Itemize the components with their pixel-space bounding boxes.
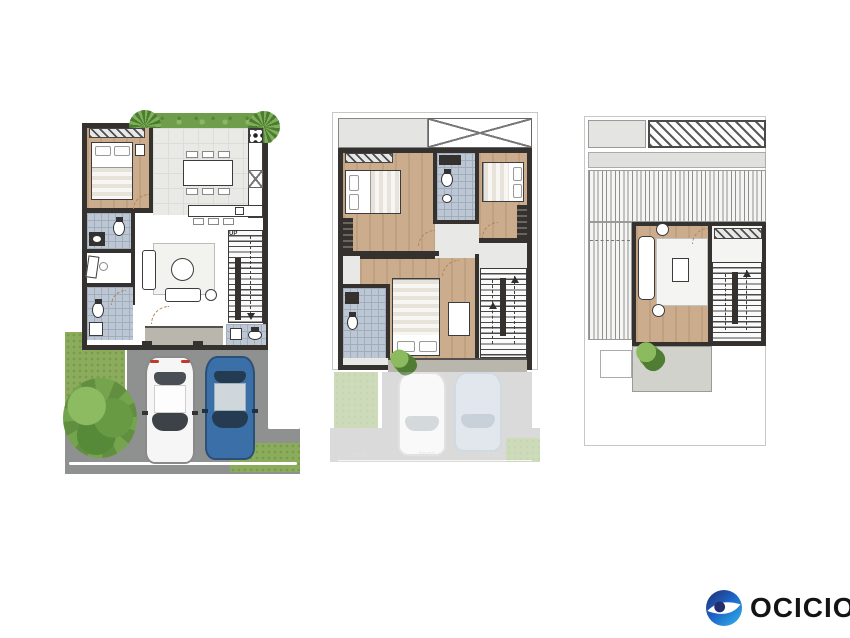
skylight-hatch: [648, 120, 766, 148]
brand-name: OCICIO: [750, 592, 850, 624]
bed-icon: [392, 278, 440, 356]
stair-spine: [732, 272, 738, 324]
floorplan-sheet: UP: [0, 0, 850, 638]
coffee-table-icon: [171, 258, 194, 281]
pillow: [349, 194, 359, 210]
dimension-label: 1875: [348, 452, 366, 459]
wardrobe: [343, 218, 353, 253]
bed-icon: [91, 142, 133, 200]
brand-logo: OCICIO: [706, 590, 850, 626]
terrace-step-outline: [600, 350, 632, 378]
side-table-icon: [205, 289, 217, 301]
wall-segment: [433, 220, 479, 224]
stair-path: [492, 280, 493, 344]
windshield: [152, 413, 188, 431]
grass-ghost: [506, 438, 540, 462]
bed-icon: [345, 170, 401, 214]
vanity: [345, 292, 359, 304]
blanket: [393, 279, 439, 335]
pergola-slats: [588, 170, 766, 222]
wall-segment: [479, 238, 527, 243]
second-floor-plan: 1875 3000 2275: [330, 110, 540, 482]
windshield: [461, 414, 495, 428]
car-ghost: [398, 372, 446, 456]
nightstand: [135, 144, 145, 156]
blanket: [483, 163, 509, 201]
kitchen-island: [188, 205, 263, 217]
island-sink-icon: [235, 207, 244, 215]
stool: [208, 218, 219, 225]
dimension-label: 2275: [482, 452, 500, 459]
closet-icon: [89, 128, 145, 138]
rear-window: [214, 371, 246, 383]
wall-segment: [87, 249, 135, 253]
toilet-icon: [248, 330, 262, 340]
toilet-icon: [92, 302, 104, 318]
garage-door-post: [193, 341, 203, 348]
roof-panel: [588, 120, 646, 148]
garage-door-post: [142, 341, 152, 348]
stair-up-arrow: [489, 298, 497, 309]
dimension-line: [338, 460, 532, 461]
toilet-icon: [113, 220, 125, 236]
closet-icon: [345, 153, 393, 163]
wall-segment: [386, 284, 390, 358]
desk-chair: [99, 262, 108, 271]
chair: [218, 188, 230, 195]
chair: [202, 188, 214, 195]
pillow: [114, 146, 130, 156]
pillow: [95, 146, 111, 156]
side-mirror: [252, 409, 258, 413]
sofa-icon: [165, 288, 201, 302]
pillow: [513, 184, 522, 198]
bed-icon: [482, 162, 524, 202]
curb-line-right: [268, 426, 300, 429]
wardrobe: [448, 302, 470, 336]
dimension-label: 3000: [418, 452, 436, 459]
plant-icon: [634, 340, 666, 372]
blanket: [92, 167, 132, 200]
stair-spine: [235, 258, 241, 320]
sink-icon: [248, 170, 263, 188]
pillow: [419, 341, 437, 352]
side-mirror: [202, 409, 208, 413]
pillow: [349, 175, 359, 191]
coffee-table-icon: [672, 258, 689, 282]
taillight: [150, 360, 159, 363]
basin-icon: [92, 235, 102, 243]
stair-path: [746, 270, 747, 330]
stair-path: [514, 276, 515, 344]
car-white: [145, 356, 195, 464]
side-mirror: [142, 411, 148, 415]
car-blue: [205, 356, 255, 460]
toilet-icon: [441, 172, 453, 187]
basin-icon: [442, 194, 452, 203]
car-roof: [214, 383, 246, 411]
stool: [223, 218, 234, 225]
wall-segment: [475, 254, 479, 358]
toilet-icon: [347, 315, 358, 330]
pergola-dash: [590, 240, 630, 241]
chair: [218, 151, 230, 158]
counter-hatch: [714, 228, 762, 239]
stool: [193, 218, 204, 225]
taillight: [181, 360, 190, 363]
side-mirror: [192, 411, 198, 415]
sofa-icon: [638, 236, 655, 300]
planter-box: [338, 118, 428, 148]
chair: [186, 151, 198, 158]
vanity: [439, 155, 461, 165]
stair-path: [725, 274, 726, 330]
logo-mark-icon: [706, 590, 742, 626]
shower-tray: [89, 322, 103, 336]
chair: [202, 151, 214, 158]
rear-window: [154, 372, 186, 385]
stair-up-label: UP: [229, 231, 237, 237]
wall-segment: [87, 283, 135, 287]
side-table-icon: [652, 304, 665, 317]
tree-icon: [63, 378, 137, 458]
car-roof: [154, 385, 186, 413]
blanket: [370, 171, 401, 213]
wall-segment: [343, 284, 388, 288]
dining-table-icon: [183, 160, 233, 186]
stove-icon: [249, 129, 263, 143]
stair-spine: [500, 278, 506, 336]
basin-cabinet: [230, 328, 242, 340]
sofa-icon: [142, 250, 156, 290]
lower-floor-ghost: 1875 3000 2275: [330, 372, 540, 482]
stair-up-arrow: [511, 272, 519, 283]
side-table-icon: [656, 223, 669, 236]
pillow: [513, 167, 522, 181]
roof-floor-plan: [580, 110, 775, 455]
windshield: [405, 416, 439, 431]
stair-path: [250, 236, 251, 314]
ground-floor-plan: UP: [65, 110, 300, 482]
wardrobe: [517, 205, 527, 241]
wall-segment: [433, 153, 437, 223]
entry-porch: [145, 326, 223, 345]
car-ghost: [454, 372, 502, 452]
roof-band: [588, 152, 766, 168]
stair-up-arrow: [743, 266, 751, 277]
void-skylight: [428, 118, 532, 148]
staircase: [228, 230, 263, 323]
stair-down-arrow: [247, 313, 255, 324]
wall-segment: [360, 254, 435, 259]
chair: [186, 188, 198, 195]
windshield: [212, 411, 248, 428]
